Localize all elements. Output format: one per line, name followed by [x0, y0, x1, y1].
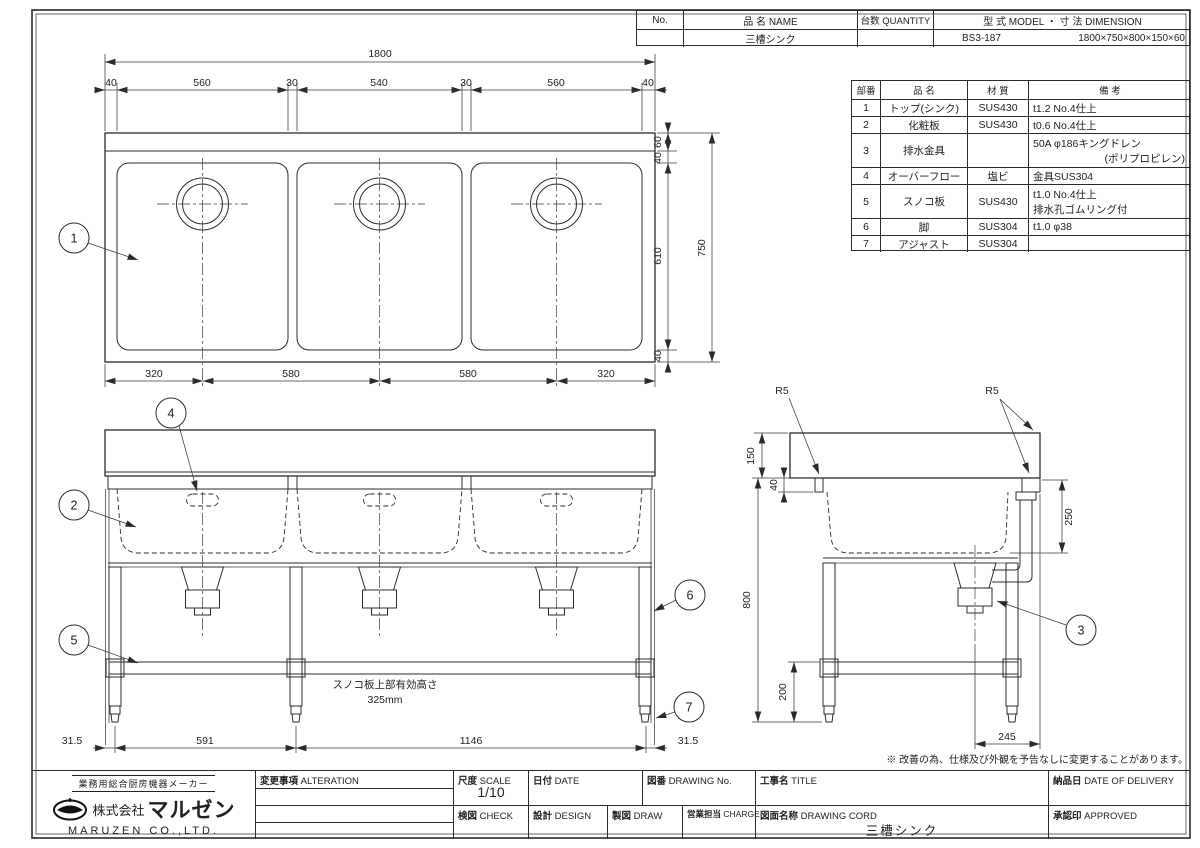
approved-cell: 承認印 APPROVED: [1048, 805, 1190, 839]
svg-text:6: 6: [687, 589, 694, 603]
dim-label: 60: [652, 136, 664, 148]
header-col-no: No.: [637, 11, 683, 29]
company-name-en: MARUZEN CO.,LTD.: [32, 825, 255, 837]
duckboard-height-value: 325mm: [367, 694, 402, 706]
dim-label: 40: [652, 152, 664, 164]
parts-h-remarks: 備 考: [1028, 81, 1191, 99]
scale-cell: 尺度 SCALE 1/10: [453, 771, 528, 805]
scale-value: 1/10: [454, 784, 528, 800]
alteration-cell: 変更事項 ALTERATION: [255, 771, 453, 788]
part-material: SUS430: [967, 99, 1028, 116]
parts-h-name: 品 名: [880, 81, 967, 99]
header-table: No. 品 名 NAME 台数 QUANTITY 型 式 MODEL ・ 寸 法…: [636, 10, 1190, 46]
dwgno-label-jp: 図番: [647, 776, 666, 787]
part-material: SUS304: [967, 235, 1028, 252]
delivery-label-jp: 納品日: [1053, 776, 1082, 787]
title-block: 業務用総合厨房機器メーカー 株式会社マルゼン MARUZEN CO.,LTD. …: [32, 770, 1190, 838]
part-remarks: t0.6 No.4仕上: [1028, 116, 1191, 133]
front-dimensions: [93, 726, 667, 753]
part-remarks: t1.2 No.4仕上: [1028, 99, 1191, 116]
alteration-row: [255, 805, 453, 822]
adjuster-foot: [640, 706, 650, 714]
dim-label: 40: [642, 77, 654, 89]
dim-label: 30: [460, 77, 472, 89]
side-top-board: [790, 433, 1040, 478]
dim-label: 540: [370, 77, 388, 89]
draw-label-jp: 製図: [612, 811, 631, 822]
parts-h-material: 材 質: [967, 81, 1028, 99]
drawing-name-value: 三槽シンク: [756, 820, 1048, 839]
parts-table: 部番 品 名 材 質 備 考 1 トップ(シンク) SUS430 t1.2 No…: [851, 80, 1190, 251]
dim-bottom: 245: [998, 731, 1016, 743]
project-title-cell: 工事名 TITLE: [755, 771, 1048, 805]
svg-text:7: 7: [686, 701, 693, 715]
dim-overall-depth: 750: [696, 239, 708, 257]
centerlines: [157, 158, 602, 386]
dim-height: 800: [741, 591, 753, 609]
side-hidden-basin: [827, 492, 1008, 553]
dim-label: 580: [282, 368, 300, 380]
dim-shelf: 200: [777, 683, 789, 701]
adjuster-foot: [110, 706, 120, 714]
dim-overall-width: 1800: [368, 48, 392, 60]
company-tagline: 業務用総合厨房機器メーカー: [72, 775, 214, 792]
part-name: トップ(シンク): [880, 99, 967, 116]
dim-label: 1146: [460, 735, 483, 747]
plan-dim-labels: 1800 40 560 30 540 30 560 40 60 40 610 4…: [105, 48, 708, 380]
radius-label-right: R5: [985, 385, 999, 397]
header-col-model-dim: 型 式 MODEL ・ 寸 法 DIMENSION: [933, 11, 1191, 29]
model-dim-values: BS3-187 1800×750×800×150×60: [933, 29, 1191, 47]
part-no: 7: [852, 235, 880, 252]
dim-label: 40: [105, 77, 117, 89]
disclaimer-note: ※ 改善の為、仕様及び外観を予告なしに変更することがあります。: [880, 751, 1188, 766]
part-remarks: t1.0 φ38: [1028, 218, 1191, 235]
delivery-label-en: DATE OF DELIVERY: [1084, 776, 1174, 787]
design-label-en: DESIGN: [555, 811, 591, 822]
drawing-sheet: 1800 40 560 30 540 30 560 40 60 40 610 4…: [0, 0, 1200, 848]
part-material: SUS430: [967, 184, 1028, 218]
side-dimensions: [752, 398, 1068, 749]
title-label-en: TITLE: [791, 776, 817, 787]
part-material: SUS304: [967, 218, 1028, 235]
svg-text:4: 4: [168, 407, 175, 421]
plan-dimensions: [95, 54, 720, 387]
product-name: 三槽シンク: [683, 29, 857, 47]
part-remarks: 50A φ186キングドレン (ポリプロピレン): [1028, 133, 1191, 167]
balloon-3: 3: [997, 601, 1096, 645]
front-dim-labels: 31.5 591 1146 31.5 スノコ板上部有効高さ 325mm: [62, 678, 699, 747]
dim-depth: 250: [1063, 508, 1075, 526]
dwgno-label-en: DRAWING No.: [669, 776, 732, 787]
radius-label-left: R5: [775, 385, 789, 397]
balloon-1: 1: [59, 223, 138, 260]
check-cell: 検図 CHECK: [453, 805, 528, 839]
part-name: アジャスト: [880, 235, 967, 252]
part-name: オーバーフロー: [880, 167, 967, 184]
header-value-no: [637, 29, 683, 47]
draw-label-en: DRAW: [634, 811, 663, 822]
adjuster-foot: [824, 706, 834, 714]
maruzen-logo: [51, 797, 89, 821]
balloon-4: 4: [156, 398, 197, 491]
overflow-pipe-top: [1016, 492, 1036, 500]
parts-h-no: 部番: [852, 81, 880, 99]
part-no: 6: [852, 218, 880, 235]
duckboard-height-note: スノコ板上部有効高さ: [333, 678, 438, 691]
date-label-en: DATE: [555, 776, 580, 787]
title-label-jp: 工事名: [760, 776, 789, 787]
design-cell: 設計 DESIGN: [528, 805, 607, 839]
dim-label: 610: [652, 247, 664, 265]
date-cell: 日付 DATE: [528, 771, 642, 805]
alteration-row: [255, 822, 453, 839]
side-view: 150 40 800 200 250 245 R5 R5 3: [741, 385, 1096, 749]
delivery-cell: 納品日 DATE OF DELIVERY: [1048, 771, 1190, 805]
check-label-en: CHECK: [480, 811, 513, 822]
dim-label: 30: [286, 77, 298, 89]
alteration-label-jp: 変更事項: [260, 776, 298, 787]
part-no: 5: [852, 184, 880, 218]
dim-label: 40: [652, 350, 664, 362]
svg-text:5: 5: [71, 634, 78, 648]
part-no: 3: [852, 133, 880, 167]
dim-label: 31.5: [678, 735, 699, 747]
dim-edge: 40: [768, 479, 780, 491]
quantity-value: [857, 29, 933, 47]
dim-label: 591: [196, 735, 214, 747]
part-material: SUS430: [967, 116, 1028, 133]
approved-label-jp: 承認印: [1053, 811, 1082, 822]
company-cell: 業務用総合厨房機器メーカー 株式会社マルゼン MARUZEN CO.,LTD.: [32, 771, 255, 839]
front-apron: [108, 476, 652, 489]
part-remarks: t1.0 No.4仕上 排水孔ゴムリング付: [1028, 184, 1191, 218]
alteration-label-en: ALTERATION: [301, 776, 359, 787]
plan-view: 1800 40 560 30 540 30 560 40 60 40 610 4…: [59, 48, 720, 387]
balloon-6: 6: [654, 580, 705, 611]
part-name: 排水金具: [880, 133, 967, 167]
dim-label: 320: [597, 368, 615, 380]
part-no: 4: [852, 167, 880, 184]
company-prefix: 株式会社: [92, 800, 144, 819]
check-label-jp: 検図: [458, 811, 477, 822]
design-label-jp: 設計: [533, 811, 552, 822]
approved-label-en: APPROVED: [1084, 811, 1137, 822]
part-remarks: 金具SUS304: [1028, 167, 1191, 184]
dim-label: 31.5: [62, 735, 83, 747]
part-name: 化粧板: [880, 116, 967, 133]
adjuster-foot: [1007, 706, 1017, 714]
drawing-name-cell: 図面名称 DRAWING CORD 三槽シンク: [755, 805, 1048, 839]
part-no: 2: [852, 116, 880, 133]
model-number: BS3-187: [962, 33, 1001, 44]
balloon-5: 5: [59, 625, 138, 663]
dim-label: 560: [193, 77, 211, 89]
adjuster-foot: [291, 706, 301, 714]
part-material: 塩ビ: [967, 167, 1028, 184]
front-view: 31.5 591 1146 31.5 スノコ板上部有効高さ 325mm 4 2 …: [59, 398, 705, 753]
header-col-name: 品 名 NAME: [683, 11, 857, 29]
date-label-jp: 日付: [533, 776, 552, 787]
charge-cell: 営業担当 CHARGE: [682, 805, 755, 839]
dimension-value: 1800×750×800×150×60: [1078, 33, 1185, 44]
dim-label: 560: [547, 77, 565, 89]
side-legs: [820, 563, 1021, 722]
svg-text:3: 3: [1078, 624, 1085, 638]
charge-label-jp: 営業担当: [687, 809, 721, 819]
part-remarks: [1028, 235, 1191, 252]
side-dim-labels: 150 40 800 200 250 245 R5 R5: [741, 385, 1075, 743]
part-name: 脚: [880, 218, 967, 235]
svg-text:2: 2: [71, 499, 78, 513]
drawing-no-cell: 図番 DRAWING No.: [642, 771, 755, 805]
part-name: スノコ板: [880, 184, 967, 218]
company-name: マルゼン: [148, 794, 236, 824]
dim-label: 580: [459, 368, 477, 380]
header-col-qty: 台数 QUANTITY: [857, 11, 933, 29]
balloon-7: 7: [656, 692, 704, 722]
dim-label: 320: [145, 368, 163, 380]
dim-backsplash: 150: [745, 447, 757, 465]
alteration-row: [255, 788, 453, 805]
part-no: 1: [852, 99, 880, 116]
draw-cell: 製図 DRAW: [607, 805, 682, 839]
svg-text:1: 1: [71, 232, 78, 246]
front-top-board: [105, 430, 655, 476]
part-material: [967, 133, 1028, 167]
balloon-2: 2: [59, 490, 136, 527]
